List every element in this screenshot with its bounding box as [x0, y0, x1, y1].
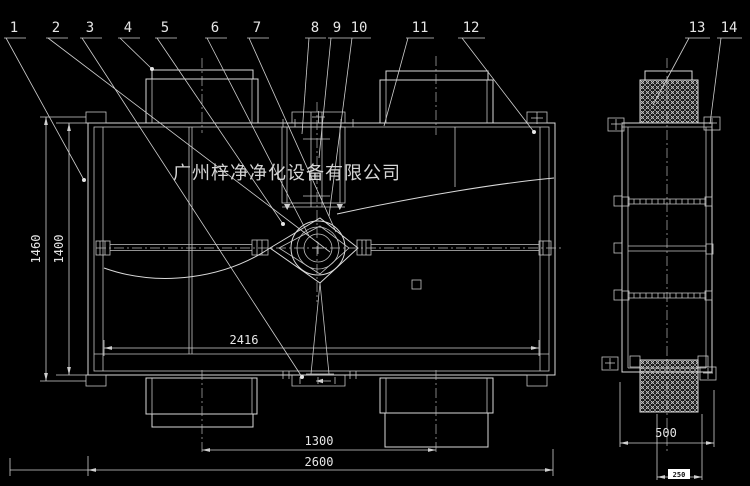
dim-duct-spacing: 1300	[202, 434, 436, 450]
svg-text:8: 8	[311, 20, 319, 36]
filter-bottom	[640, 360, 698, 412]
svg-text:2600: 2600	[305, 455, 334, 469]
part-label-6: 6	[205, 20, 309, 236]
svg-text:5: 5	[161, 20, 169, 36]
shelf-divider-3	[614, 290, 712, 300]
svg-text:2: 2	[52, 20, 60, 36]
svg-text:6: 6	[211, 20, 219, 36]
svg-text:14: 14	[721, 20, 738, 36]
svg-text:12: 12	[463, 20, 480, 36]
top-duct-right	[380, 56, 493, 135]
svg-text:1460: 1460	[29, 235, 43, 264]
svg-text:1400: 1400	[52, 235, 66, 264]
svg-text:11: 11	[412, 20, 429, 36]
top-duct-left	[146, 58, 258, 133]
filter-top	[640, 80, 698, 123]
dim-height-inner: 1400	[52, 123, 88, 375]
svg-text:9: 9	[333, 20, 341, 36]
corner-flanges	[86, 112, 547, 386]
svg-text:250: 250	[673, 471, 686, 479]
cad-viewport: 1460 1400 2416 1300 2600	[0, 0, 750, 486]
svg-text:2416: 2416	[230, 333, 259, 347]
front-view	[86, 56, 562, 452]
part-label-1: 1	[4, 20, 86, 182]
bottom-bracket	[292, 375, 345, 386]
svg-text:500: 500	[655, 426, 677, 440]
part-label-11: 11	[384, 20, 434, 126]
part-label-7: 7	[247, 20, 336, 232]
filter-clamp-right	[698, 356, 708, 367]
svg-text:10: 10	[351, 20, 368, 36]
cad-drawing: 1460 1400 2416 1300 2600	[0, 0, 750, 486]
dim-width-overall: 2600	[10, 449, 553, 476]
drain-port	[412, 280, 421, 289]
part-labels: 1 2 3 4 5 6 7	[4, 20, 742, 379]
svg-text:3: 3	[86, 20, 94, 36]
shelf-divider-1	[614, 196, 712, 206]
dim-side-duct-width: 250	[657, 414, 702, 480]
scroll-curve-left	[104, 248, 270, 278]
part-label-4: 4	[118, 20, 154, 71]
svg-text:7: 7	[253, 20, 261, 36]
bottom-duct-right	[380, 370, 493, 452]
side-flanges	[602, 117, 720, 380]
dim-width-inner: 2416	[104, 333, 539, 356]
shelf-divider-2	[614, 243, 713, 254]
part-label-10: 10	[329, 20, 371, 216]
cabinet-body	[88, 119, 555, 379]
svg-text:1: 1	[10, 20, 18, 36]
part-label-12: 12	[458, 20, 536, 134]
part-label-9: 9	[319, 20, 348, 158]
fan-assembly	[96, 102, 562, 374]
fan-support	[306, 283, 334, 374]
filter-clamp-left	[630, 356, 640, 367]
svg-text:4: 4	[124, 20, 132, 36]
svg-text:1300: 1300	[305, 434, 334, 448]
part-label-14: 14	[710, 20, 742, 124]
svg-text:13: 13	[689, 20, 706, 36]
bottom-duct-left	[146, 370, 257, 452]
watermark-company-name: 广州梓净净化设备有限公司	[173, 163, 401, 184]
